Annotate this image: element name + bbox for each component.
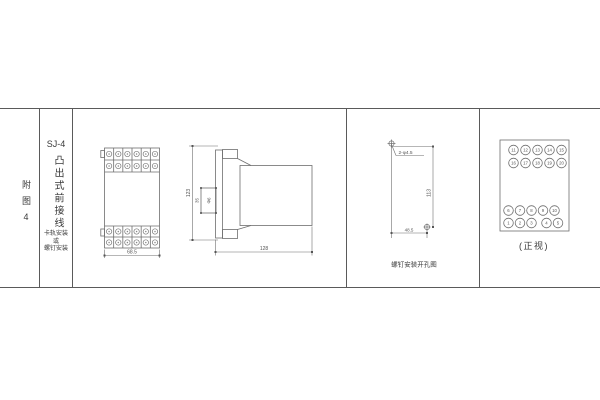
- terminal-number: 13: [535, 148, 540, 153]
- terminal-number: 5: [557, 221, 560, 226]
- terminal-number: 1: [507, 221, 510, 226]
- drill-vertical-dim-label: 113: [427, 189, 433, 197]
- terminal-layout-caption: (正视): [519, 240, 549, 251]
- side-view-drawing: 35 Φ6 123 128: [186, 145, 313, 256]
- terminal-number: 7: [519, 208, 522, 213]
- figure-number-label: 附图4: [20, 180, 33, 229]
- terminal-number: 12: [523, 148, 528, 153]
- terminal-layout-drawing: 11 12 13 14 15 16 17 18 19 20 6 7 8 9 10…: [500, 140, 569, 251]
- sheet-frame: [0, 109, 600, 288]
- terminal-number: 14: [547, 148, 552, 153]
- mounting-type-label: 凸出式前接线: [50, 155, 65, 230]
- side-view-height-dim-label: 123: [186, 189, 192, 198]
- terminal-number: 9: [542, 208, 545, 213]
- terminal-number: 3: [530, 221, 533, 226]
- drawing-canvas: 68.5 35 Φ6: [0, 0, 600, 400]
- terminal-number: 20: [559, 161, 564, 166]
- drill-vertical-dimension: [432, 146, 434, 229]
- mount-hole-bottom-right: [424, 224, 431, 231]
- drawing-sheet: 68.5 35 Φ6: [0, 0, 600, 400]
- side-view-depth-dim-label: 128: [260, 246, 269, 252]
- terminal-number: 19: [547, 161, 552, 166]
- terminal-number: 6: [507, 208, 510, 213]
- terminal-circles: 11 12 13 14 15 16 17 18 19 20 6 7 8 9 10…: [504, 145, 567, 228]
- terminal-number: 16: [511, 161, 516, 166]
- front-view-drawing: 68.5: [101, 148, 161, 258]
- bracket-hole-dim-label: Φ6: [207, 197, 212, 204]
- bracket-width-dim-label: 35: [195, 198, 200, 204]
- terminal-number: 17: [523, 161, 528, 166]
- terminal-number: 10: [552, 208, 557, 213]
- hole-callout-label: 2-φ4.5: [399, 150, 413, 156]
- drill-diagram-caption: 螺钉安装开孔图: [391, 260, 437, 269]
- front-view-width-dim-label: 68.5: [127, 250, 137, 256]
- drill-horizontal-dim-label: 48.5: [405, 227, 414, 232]
- terminal-grid-lines: [114, 148, 151, 248]
- drill-diagram: 113 48.5 2-φ4.5 螺钉安装开孔图: [388, 140, 437, 269]
- mount-note-label: 卡轨安装 或 螺钉安装: [39, 231, 73, 254]
- terminal-number: 11: [511, 148, 516, 153]
- side-view-height-dimension: [189, 145, 218, 241]
- terminal-number: 8: [530, 208, 533, 213]
- terminal-number: 4: [545, 221, 548, 226]
- model-label: SJ-4: [39, 139, 73, 149]
- terminal-number: 2: [519, 221, 522, 226]
- terminal-number: 18: [535, 161, 540, 166]
- terminal-number: 15: [559, 148, 564, 153]
